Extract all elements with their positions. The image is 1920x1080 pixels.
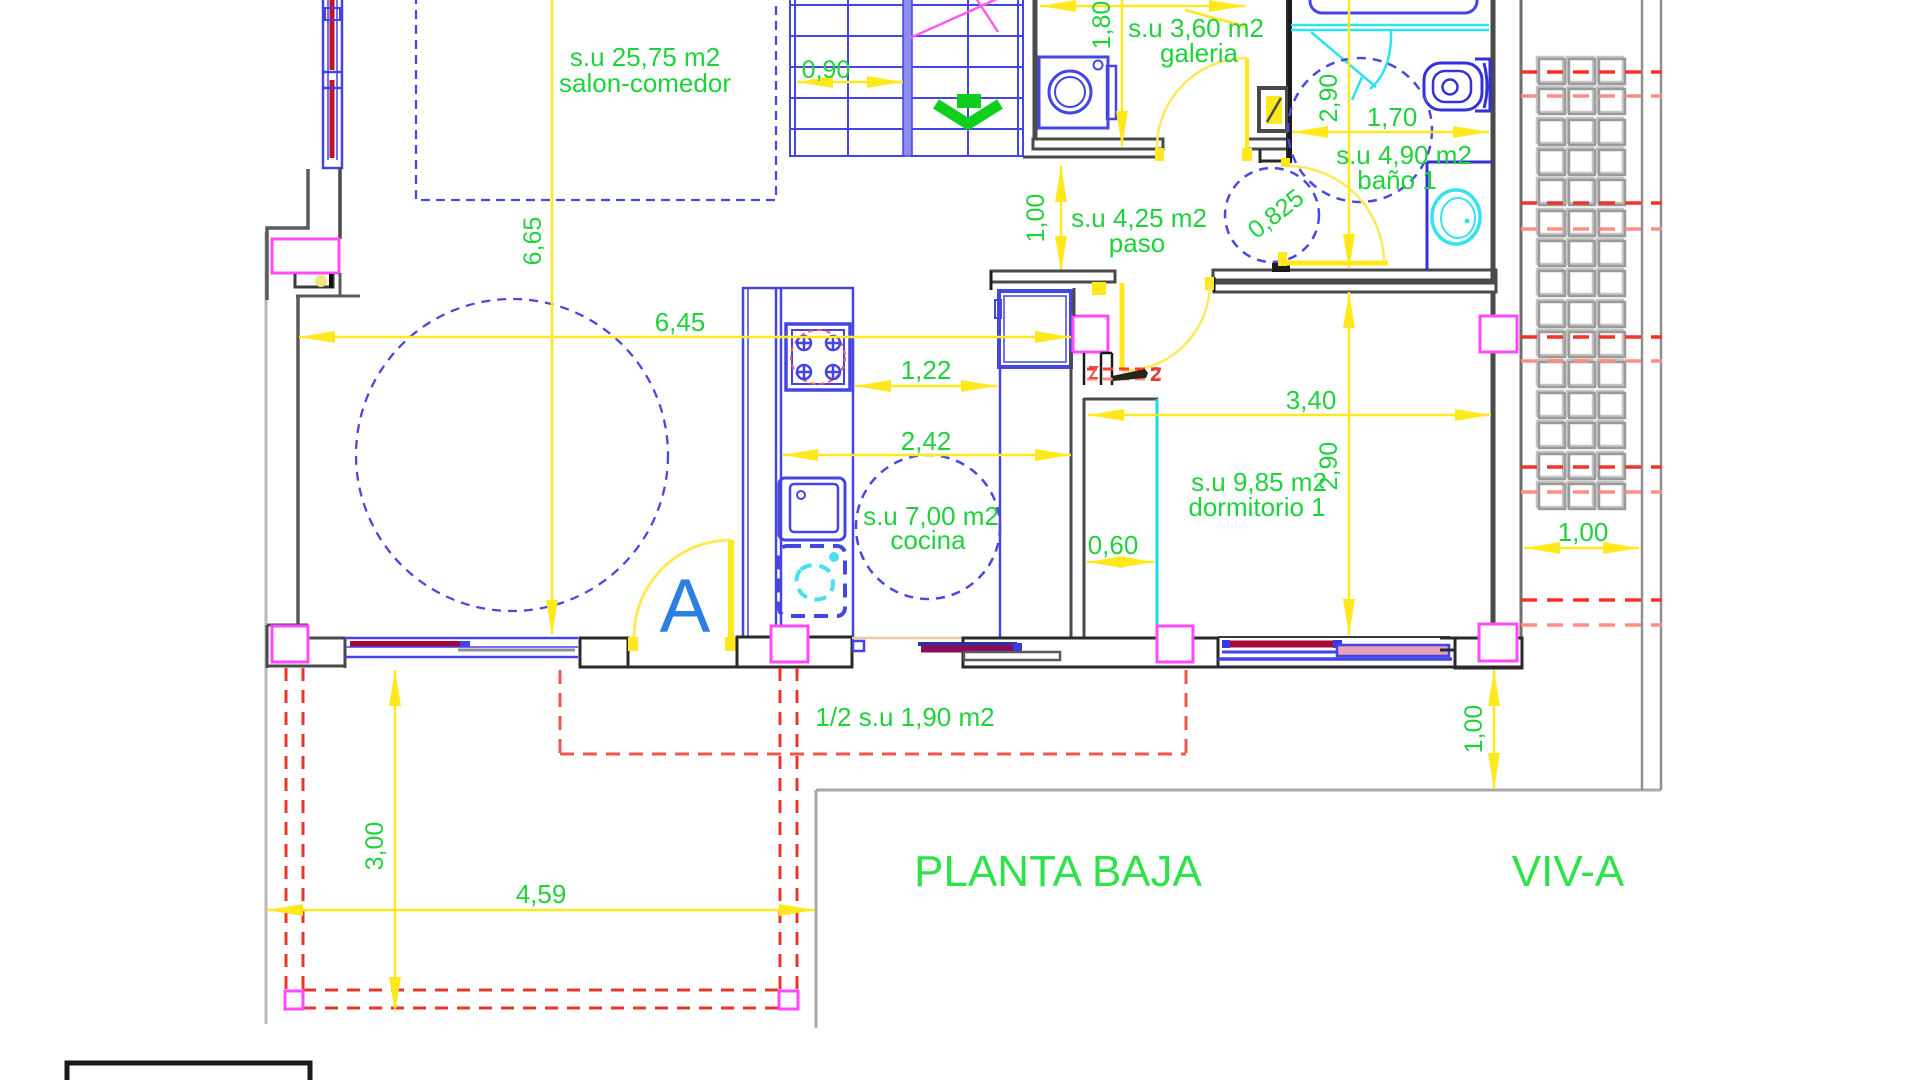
svg-text:salon-comedor: salon-comedor [559,68,731,98]
svg-text:dormitorio 1: dormitorio 1 [1188,492,1325,522]
svg-text:3,00: 3,00 [361,822,389,871]
svg-text:galeria: galeria [1160,38,1239,68]
svg-text:3,40: 3,40 [1286,385,1337,415]
svg-text:2,42: 2,42 [901,426,952,456]
svg-text:1,00: 1,00 [1022,194,1050,243]
svg-text:1,80: 1,80 [1088,1,1116,50]
svg-text:1,00: 1,00 [1558,517,1609,547]
svg-text:4,59: 4,59 [516,879,567,909]
svg-text:VIV-A: VIV-A [1512,847,1625,896]
svg-text:0,90: 0,90 [802,56,851,84]
svg-text:baño 1: baño 1 [1357,165,1437,195]
svg-text:6,65: 6,65 [519,217,547,266]
svg-text:PLANTA BAJA: PLANTA BAJA [914,847,1202,896]
svg-text:6,45: 6,45 [655,307,706,337]
svg-text:1,00: 1,00 [1460,705,1488,754]
svg-text:1,22: 1,22 [901,355,952,385]
svg-text:paso: paso [1109,228,1165,258]
svg-text:1/2 s.u 1,90 m2: 1/2 s.u 1,90 m2 [815,702,994,732]
svg-text:cocina: cocina [890,525,966,555]
svg-text:2,90: 2,90 [1315,442,1343,491]
svg-text:A: A [660,564,711,649]
svg-text:0,60: 0,60 [1088,530,1139,560]
svg-text:2: 2 [1150,364,1161,386]
svg-text:2,90: 2,90 [1315,74,1343,123]
svg-text:1,70: 1,70 [1367,102,1418,132]
